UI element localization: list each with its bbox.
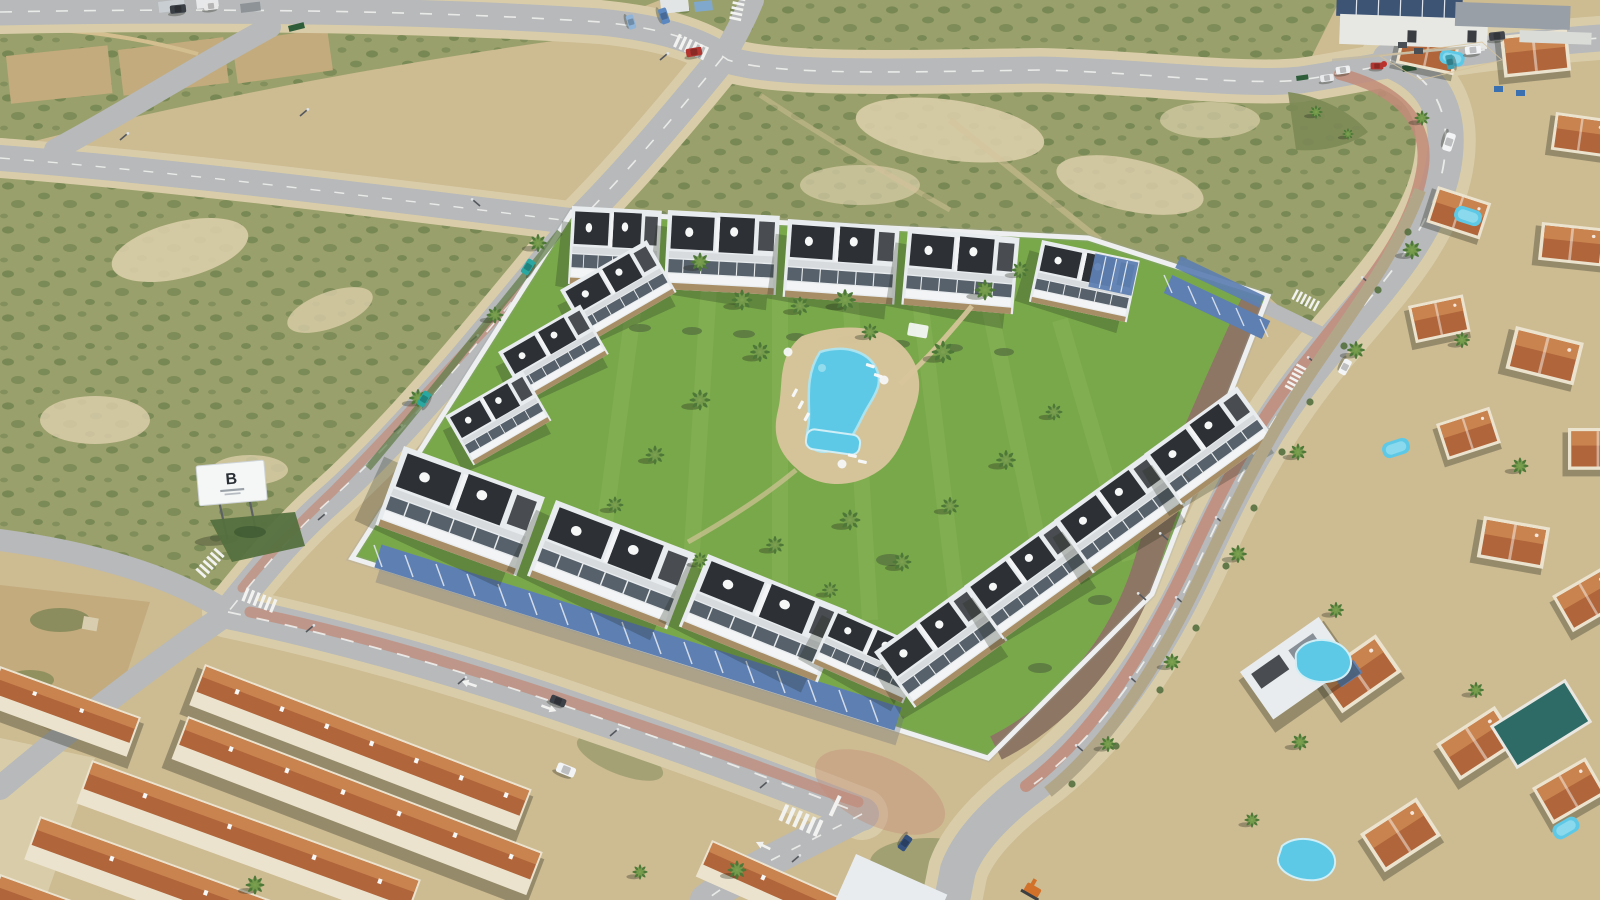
parasol <box>880 376 889 385</box>
parasol <box>838 460 847 469</box>
kidney-pool <box>1296 640 1351 682</box>
canopy <box>1455 2 1571 30</box>
billboard-logo: B <box>225 471 238 489</box>
aerial-scene: B <box>0 0 1600 900</box>
red-machine <box>1369 63 1384 72</box>
parasol <box>784 348 793 357</box>
aerial-photo: B <box>0 0 1600 900</box>
kidney-pool <box>1278 839 1335 880</box>
